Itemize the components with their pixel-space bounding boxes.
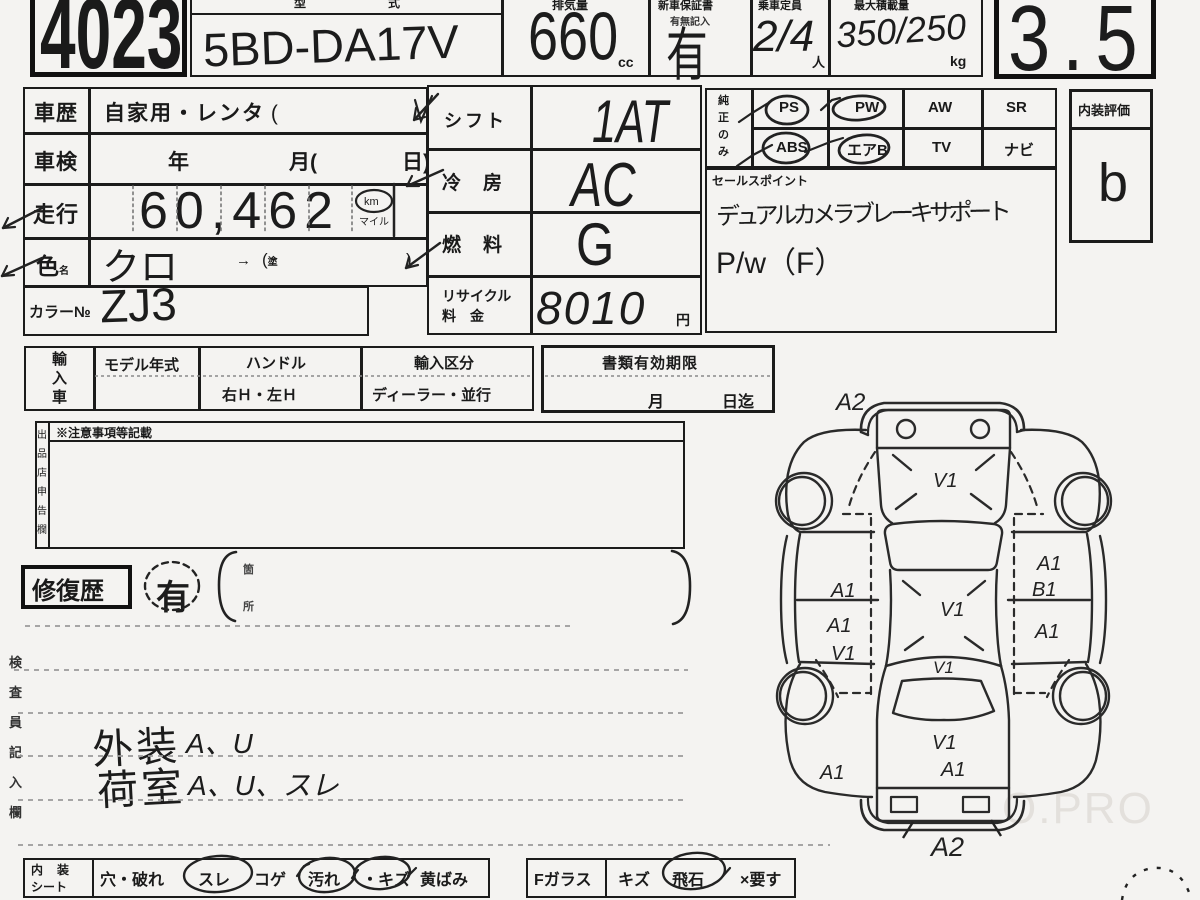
- svg-text:V1: V1: [933, 470, 957, 492]
- svg-text:A1: A1: [1036, 553, 1061, 575]
- svg-text:A2: A2: [834, 389, 865, 416]
- svg-text:V1: V1: [940, 599, 964, 621]
- svg-text:V1: V1: [831, 643, 855, 665]
- svg-text:V1: V1: [933, 658, 954, 677]
- svg-text:km: km: [364, 196, 379, 208]
- svg-text:A1: A1: [830, 580, 855, 602]
- svg-text:B1: B1: [1032, 579, 1056, 601]
- svg-text:マイル: マイル: [359, 217, 389, 228]
- svg-text:V1: V1: [932, 732, 956, 754]
- svg-text:A2: A2: [929, 832, 964, 862]
- svg-text:A1: A1: [940, 759, 965, 781]
- svg-text:A1: A1: [826, 615, 851, 637]
- svg-text:A1: A1: [1034, 621, 1059, 643]
- svg-text:A1: A1: [819, 762, 844, 784]
